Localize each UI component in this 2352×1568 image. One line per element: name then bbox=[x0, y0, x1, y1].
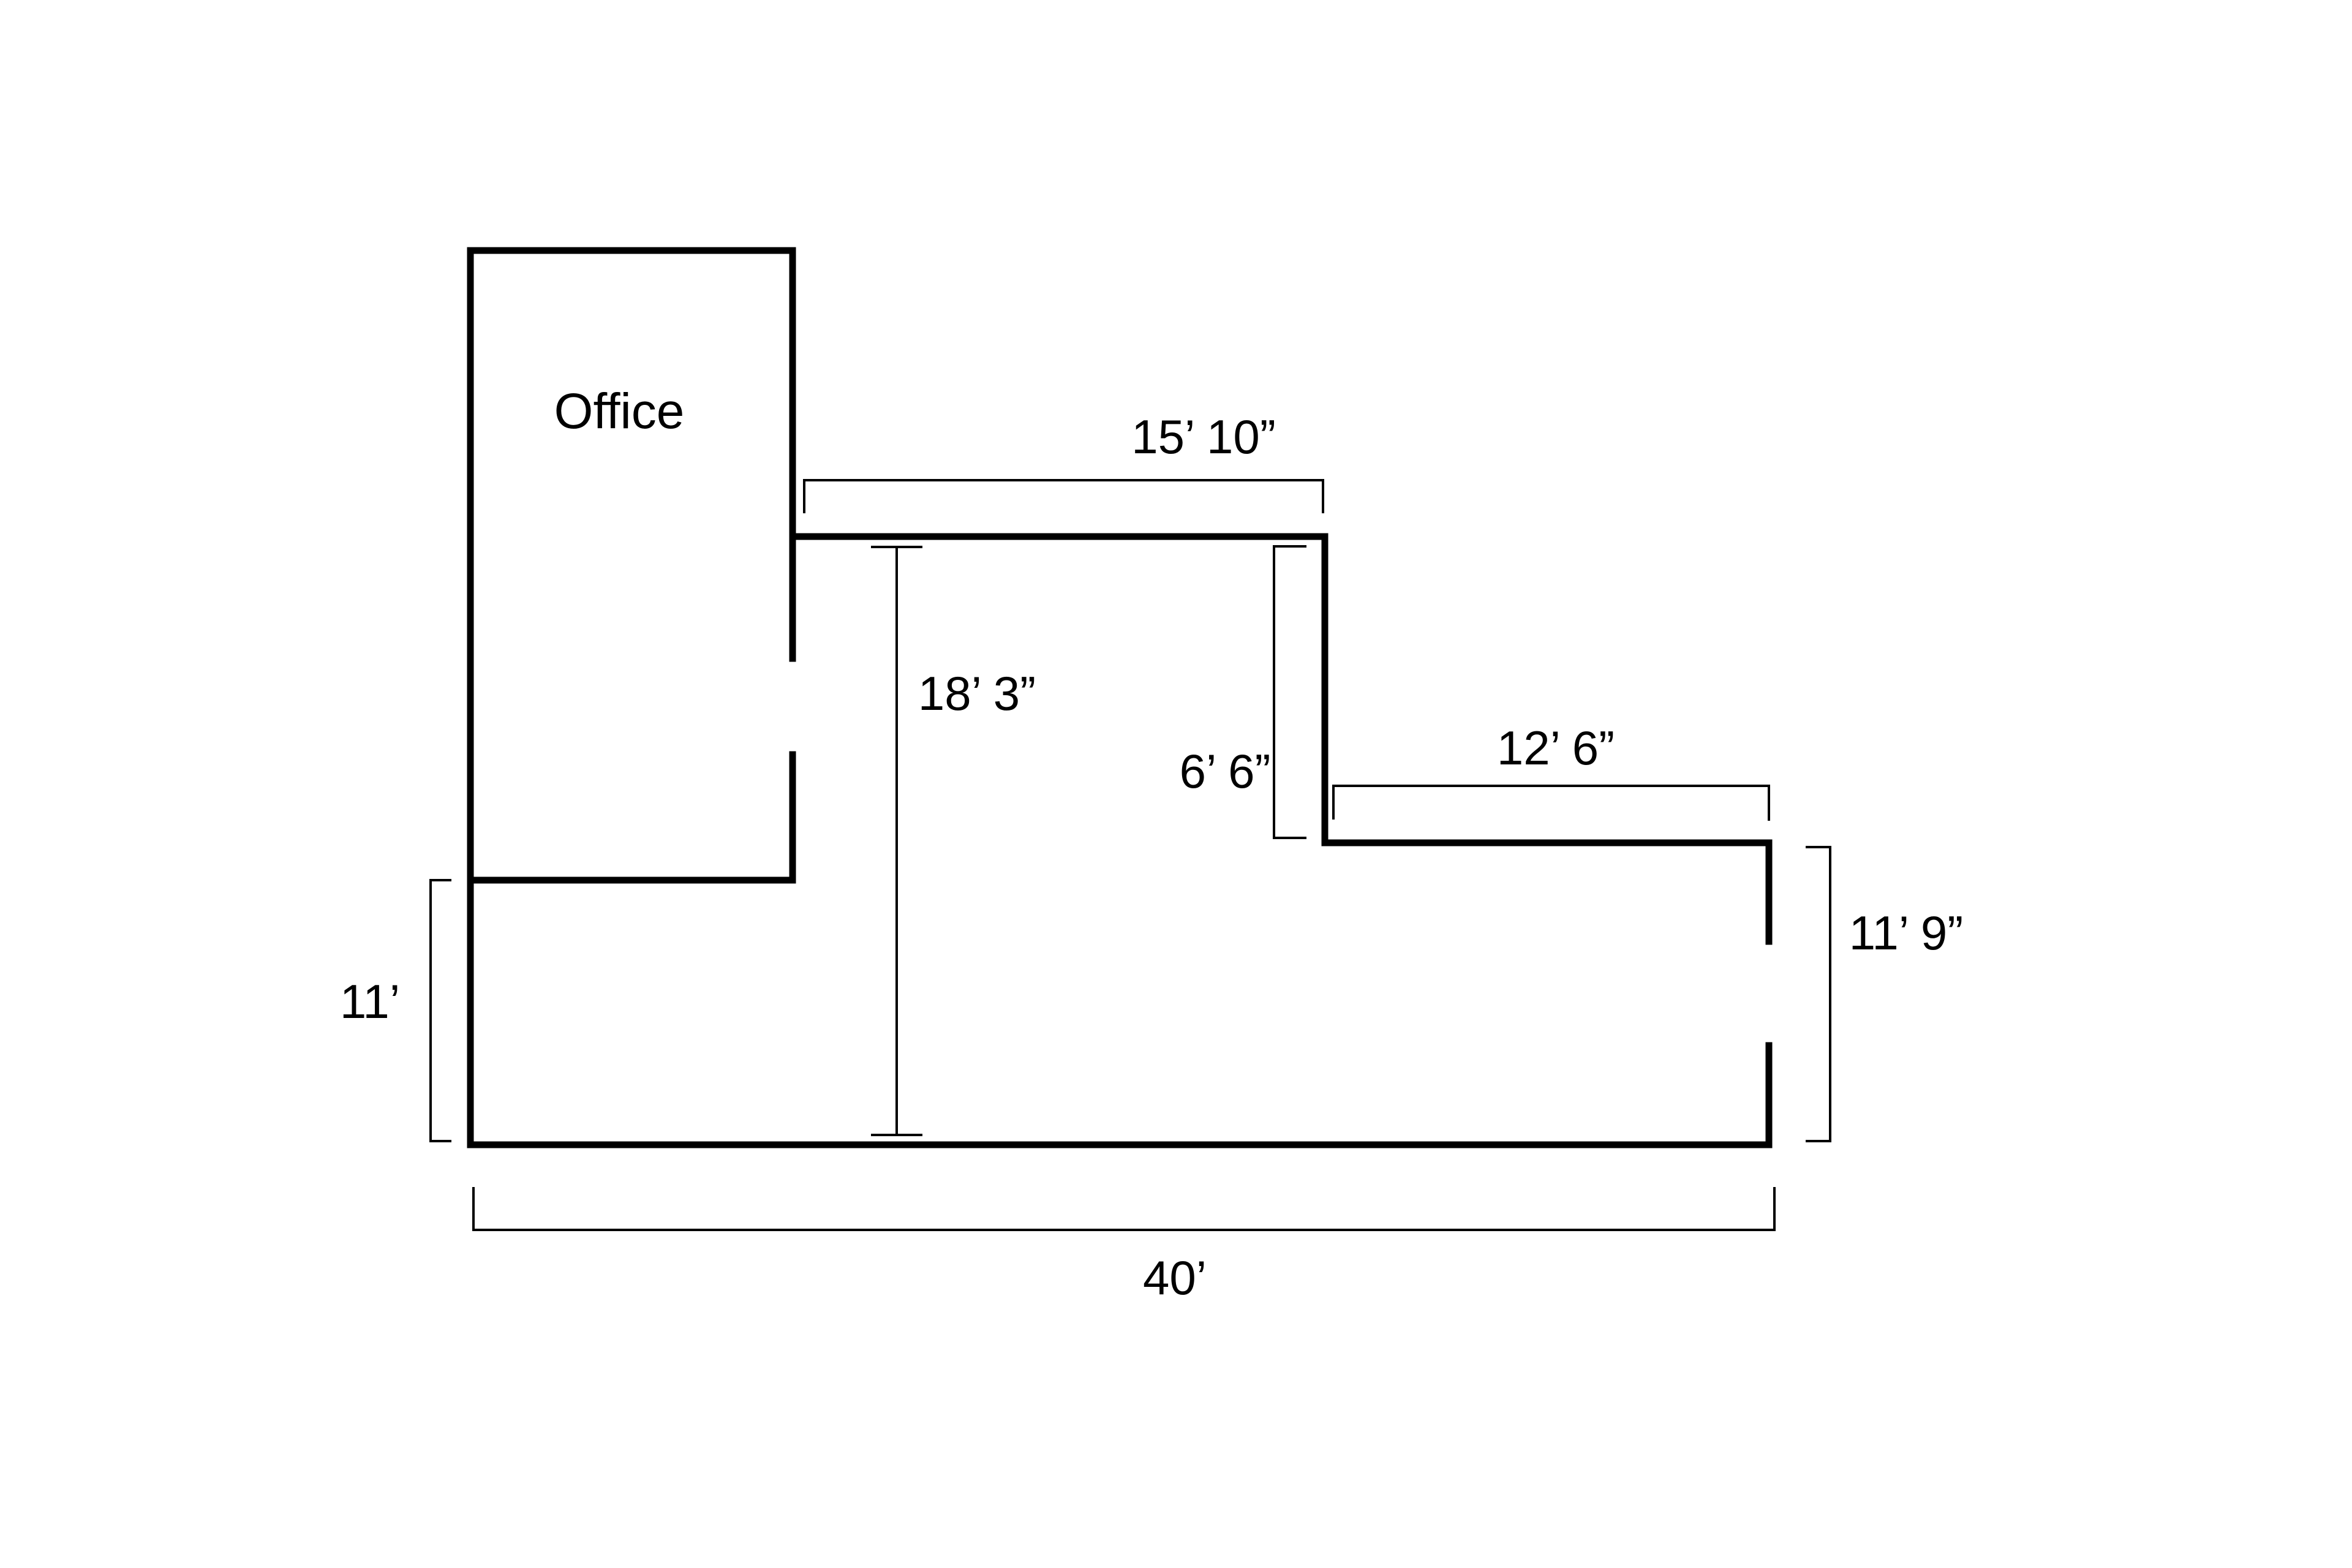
dim-interior-height-label: 18’ 3” bbox=[918, 666, 1036, 720]
dim-top-width-label: 15’ 10” bbox=[1131, 410, 1276, 464]
office-room-label: Office bbox=[554, 383, 685, 439]
dim-total-width-label: 40’ bbox=[1143, 1251, 1207, 1305]
dim-ledge-width-label: 12’ 6” bbox=[1497, 721, 1615, 775]
dim-interior-height-line bbox=[871, 547, 922, 1135]
dim-step-height-bracket bbox=[1274, 546, 1306, 838]
dim-step-height-label: 6’ 6” bbox=[1180, 744, 1271, 798]
step-walls bbox=[793, 537, 1769, 941]
dim-total-width-bracket bbox=[473, 1187, 1774, 1230]
floor-plan-canvas: Office 15’ 10” 18’ 3” 6’ 6” 12’ 6” 11’ 9… bbox=[0, 0, 2352, 1568]
dim-right-height-label: 11’ 9” bbox=[1849, 906, 1963, 960]
dim-right-height-bracket bbox=[1806, 847, 1830, 1141]
dim-top-width-bracket bbox=[804, 480, 1323, 513]
dim-left-height-label: 11’ bbox=[340, 974, 400, 1028]
dim-ledge-width-bracket bbox=[1333, 786, 1769, 821]
dim-left-height-bracket bbox=[431, 880, 451, 1141]
office-interior-walls bbox=[470, 755, 793, 880]
